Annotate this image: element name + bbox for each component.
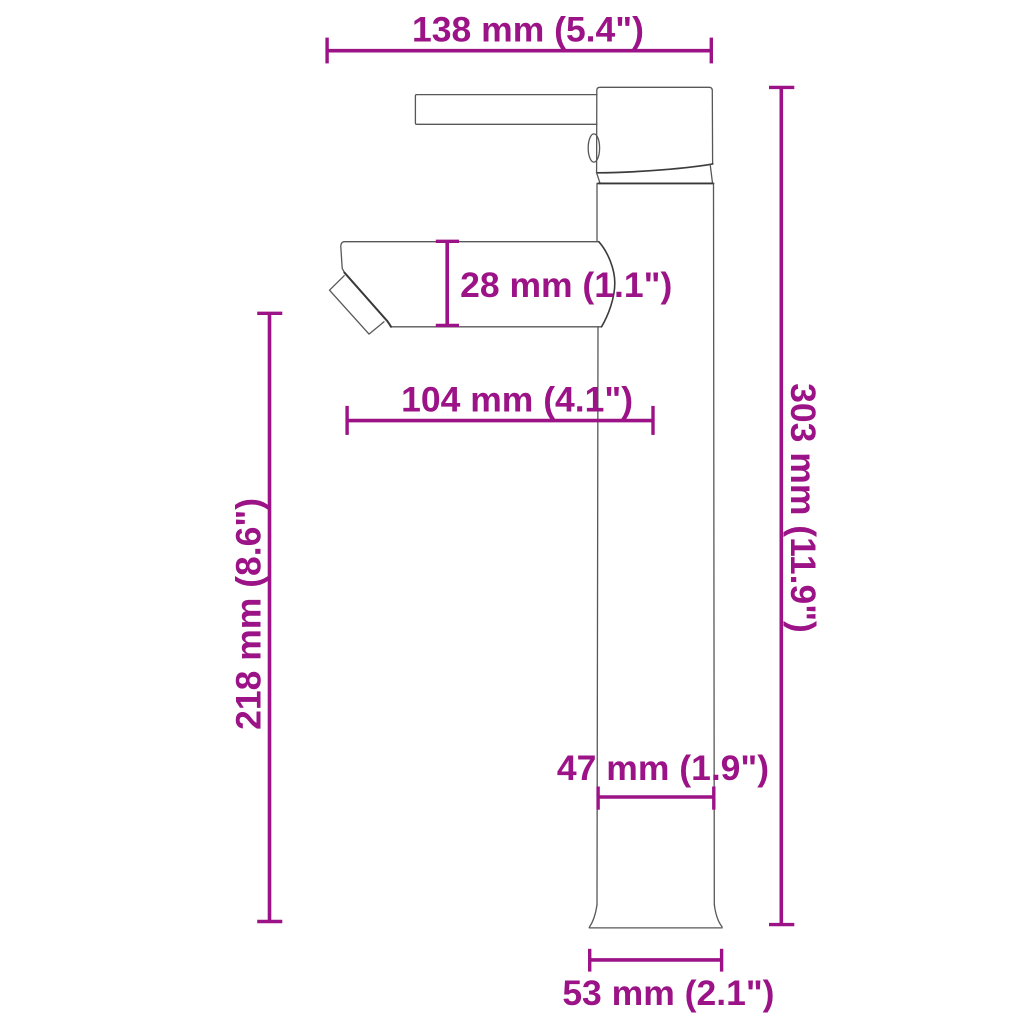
svg-text:303 mm (11.9"): 303 mm (11.9") [783,383,823,633]
svg-text:218 mm (8.6"): 218 mm (8.6") [228,498,268,730]
svg-text:138 mm (5.4"): 138 mm (5.4") [412,10,644,50]
svg-text:104 mm (4.1"): 104 mm (4.1") [401,379,633,419]
svg-text:53 mm (2.1"): 53 mm (2.1") [562,973,774,1013]
svg-text:28 mm (1.1"): 28 mm (1.1") [460,265,672,305]
svg-text:47 mm (1.9"): 47 mm (1.9") [557,748,769,788]
